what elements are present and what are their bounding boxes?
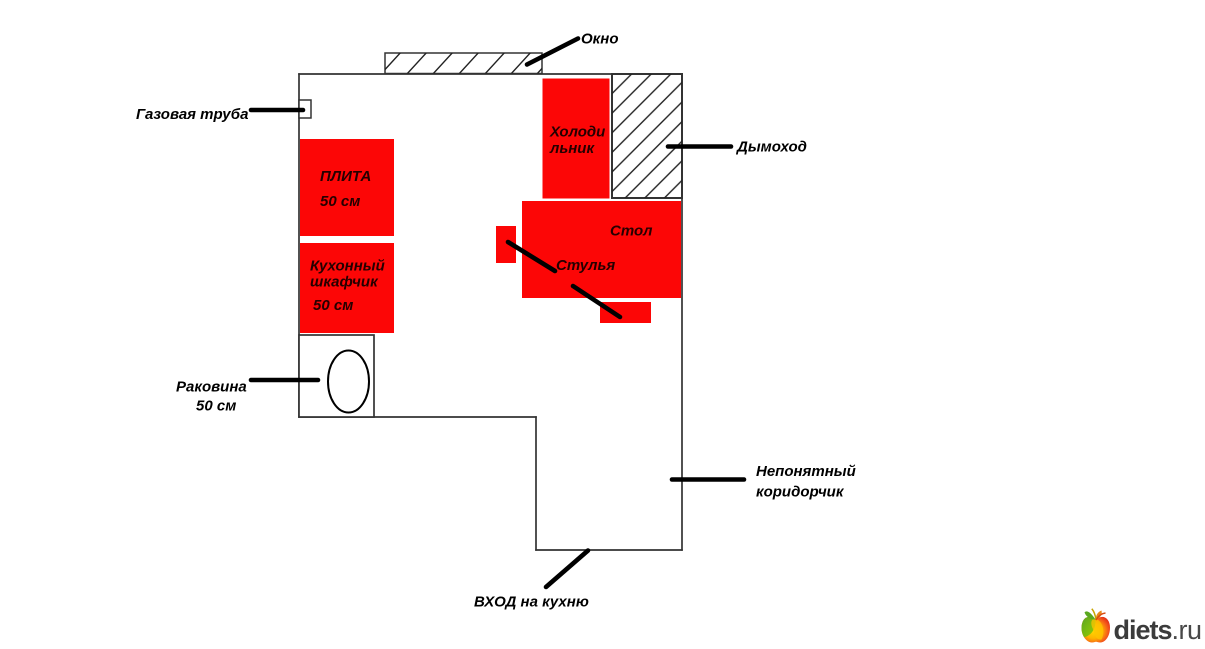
svg-text:Раковина: Раковина (176, 379, 247, 396)
svg-text:ВХОД на кухню: ВХОД на кухню (474, 594, 589, 611)
svg-text:Стол: Стол (610, 223, 653, 240)
svg-text:Газовая труба: Газовая труба (136, 106, 248, 123)
svg-text:Холоди: Холоди (549, 124, 605, 141)
svg-text:50 см: 50 см (320, 193, 360, 210)
svg-text:льник: льник (549, 140, 595, 157)
svg-text:Окно: Окно (581, 31, 619, 48)
svg-text:50 см: 50 см (313, 297, 353, 314)
svg-text:ПЛИТА: ПЛИТА (320, 168, 371, 185)
svg-text:Дымоход: Дымоход (735, 139, 807, 156)
svg-text:коридорчик: коридорчик (756, 484, 845, 501)
svg-text:Стулья: Стулья (556, 257, 615, 274)
svg-text:50 см: 50 см (196, 398, 236, 415)
svg-text:Непонятный: Непонятный (756, 463, 856, 480)
svg-text:Кухонный: Кухонный (310, 258, 385, 275)
svg-text:шкафчик: шкафчик (310, 274, 379, 291)
svg-text:diets.ru: diets.ru (1114, 615, 1202, 645)
